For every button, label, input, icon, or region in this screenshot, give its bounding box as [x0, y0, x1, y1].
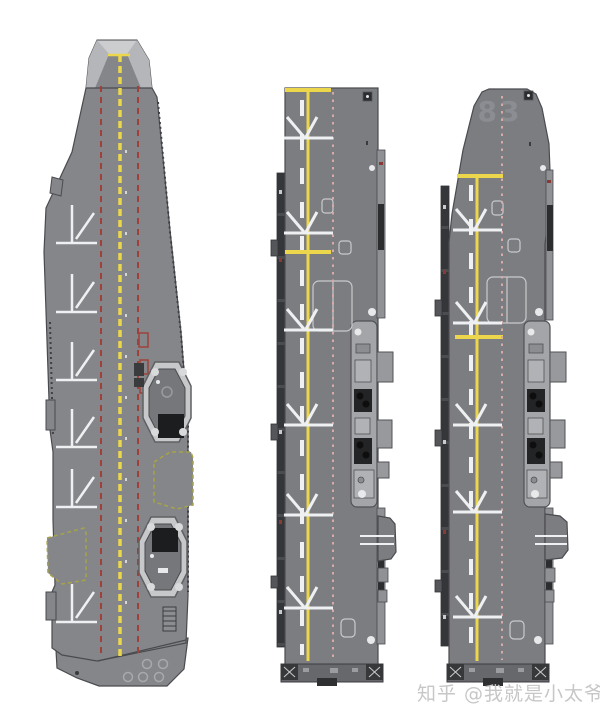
boat-station	[547, 205, 553, 251]
funnel-aft	[354, 438, 372, 464]
deck-vent	[134, 378, 144, 387]
deck-fitting	[366, 141, 368, 145]
hull-number: 83	[478, 95, 523, 128]
island-radar-dome	[528, 329, 535, 336]
deck-circle-marker	[535, 308, 543, 316]
port-bow-sponson	[50, 177, 63, 196]
edge-platform	[378, 590, 387, 602]
port-edge-notch	[46, 592, 56, 620]
deck-circle-marker	[540, 165, 546, 171]
edge-platform	[545, 590, 554, 602]
ships-drawing: 83	[0, 0, 600, 713]
striped-vent	[163, 607, 176, 631]
deck-vent	[134, 363, 144, 376]
funnel-forward	[354, 389, 372, 412]
island-aft-spot	[358, 490, 366, 498]
edge-platform	[378, 568, 388, 582]
stern-band	[281, 664, 383, 686]
catwalk-marker	[547, 180, 551, 183]
starboard-sponson-outline	[154, 452, 193, 509]
funnel-forward	[527, 389, 545, 412]
port-sponson-box	[435, 430, 442, 446]
stern-anchor-point	[75, 671, 79, 675]
boat-station	[378, 204, 384, 250]
bow-fixture-dot	[527, 94, 530, 97]
island-radar-dome	[355, 329, 362, 336]
ship-right-carrier: 83	[435, 89, 568, 686]
watermark: 知乎 @我就是小太爷	[417, 679, 600, 706]
port-edge-notch	[46, 400, 55, 430]
elevator-forward	[143, 362, 191, 442]
port-sponson-box	[271, 424, 278, 440]
deck-circle-marker	[368, 308, 376, 316]
edge-platform	[545, 568, 555, 582]
port-sponson-box	[435, 300, 442, 316]
port-sponson-outline	[47, 528, 86, 584]
ship-left-large-carrier	[44, 40, 193, 686]
island	[351, 321, 393, 507]
deck-circle-marker	[367, 636, 375, 644]
deck-fitting	[529, 142, 531, 146]
catwalk-marker	[379, 162, 383, 165]
port-sponson-box	[435, 580, 442, 592]
elevator-aft	[139, 517, 187, 597]
deck-circle-marker	[534, 636, 542, 644]
deck-plan-figure: 83	[0, 0, 600, 713]
ship-middle-carrier	[271, 88, 396, 686]
deck-circle-marker	[369, 165, 375, 171]
bow-fixture-dot	[366, 95, 369, 98]
island	[524, 321, 566, 507]
stern-deck-extension	[378, 516, 396, 561]
port-sponson-box	[271, 576, 278, 588]
funnel-aft	[527, 438, 545, 464]
port-sponson-box	[271, 240, 278, 256]
island-aft-spot	[531, 490, 539, 498]
